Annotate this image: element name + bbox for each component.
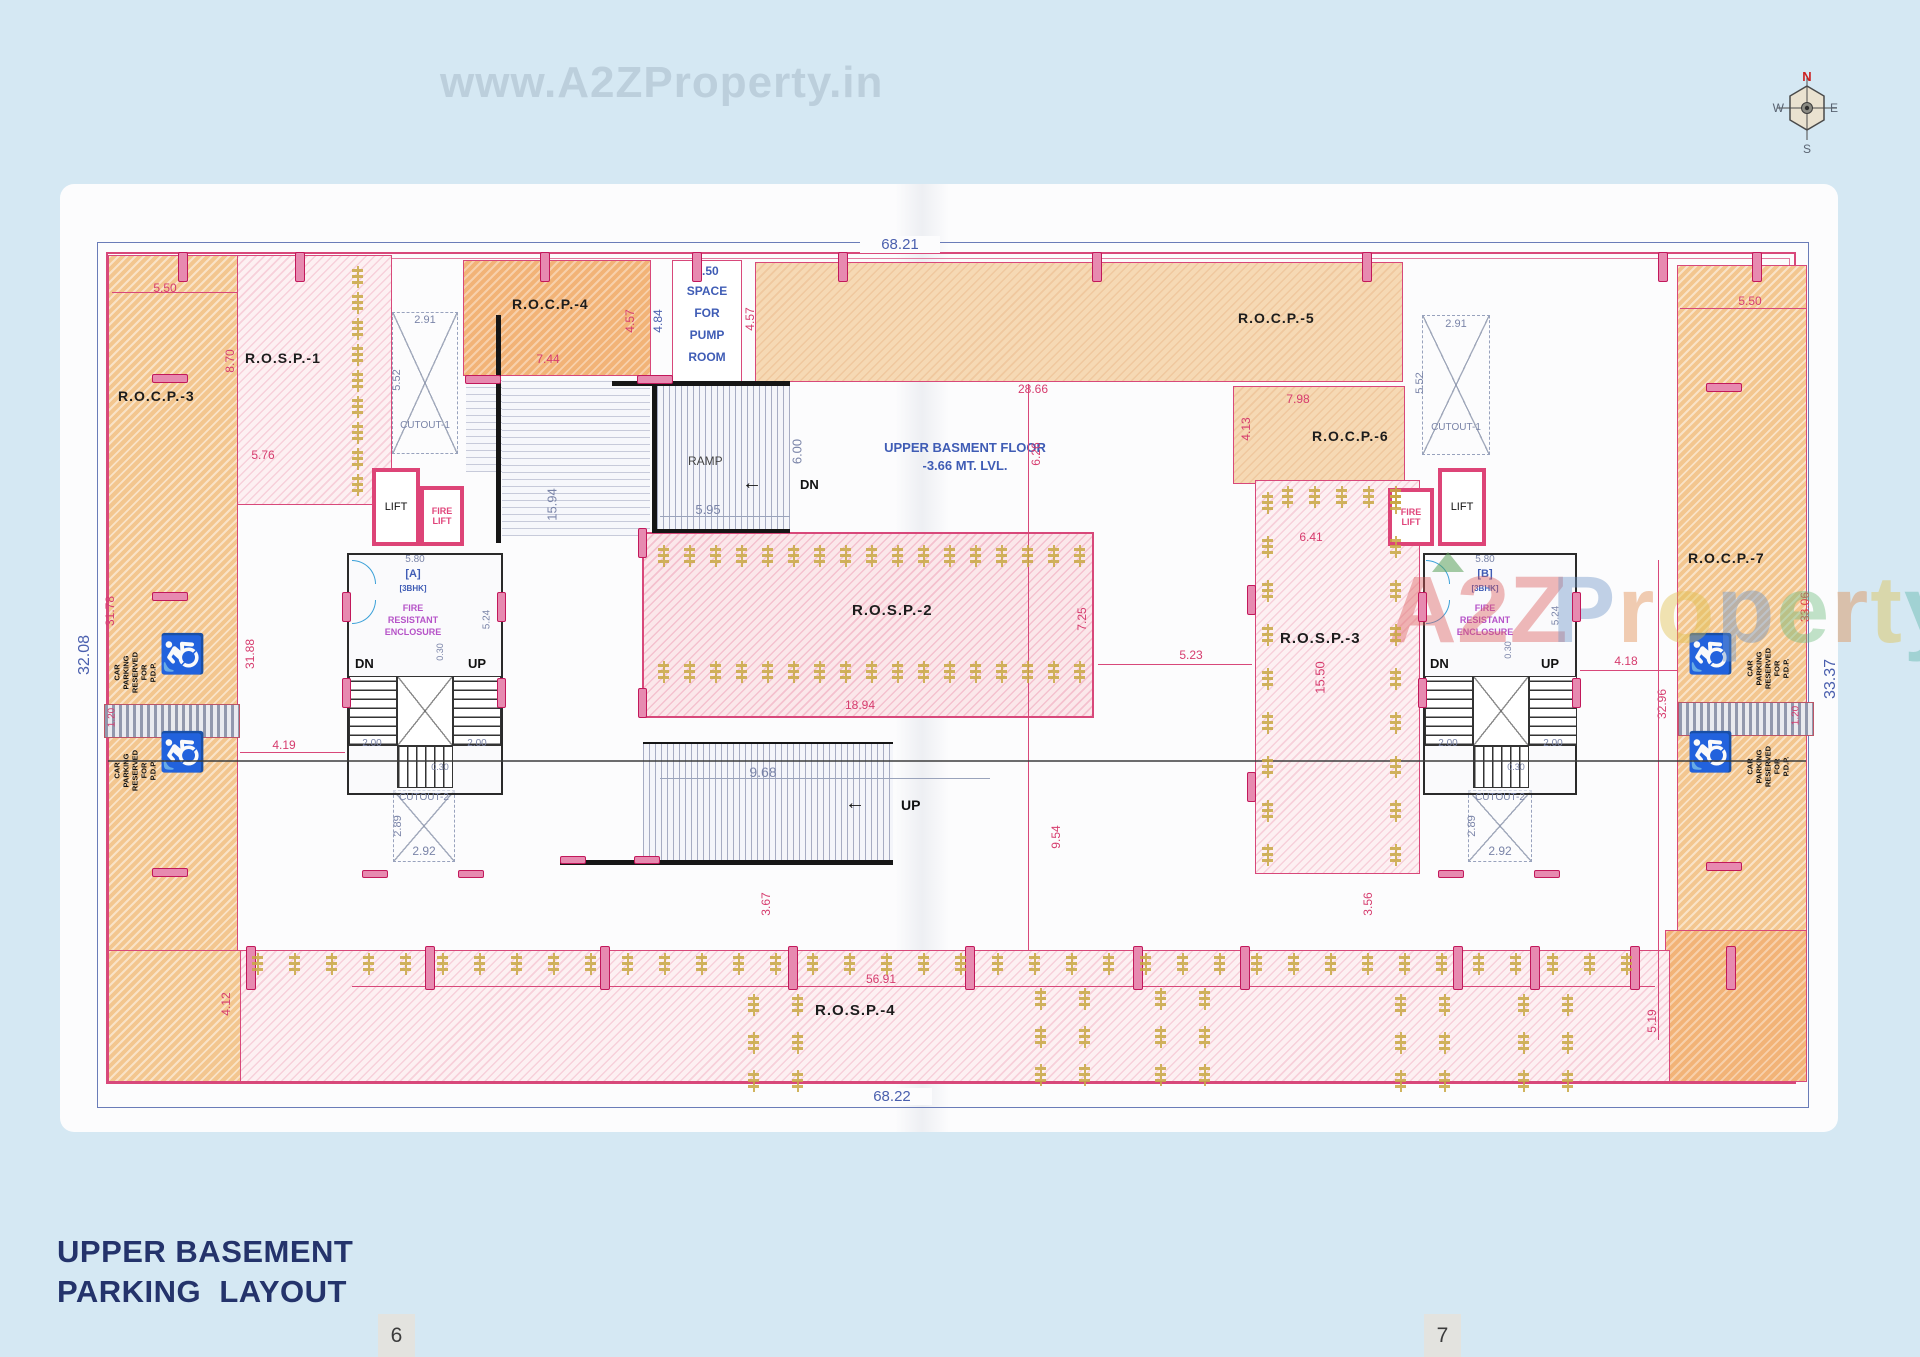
column-marker <box>1247 772 1256 802</box>
tree-icon <box>1079 1026 1090 1048</box>
column-marker <box>637 375 673 384</box>
tree-icon <box>622 953 633 975</box>
dim-576: 5.76 <box>233 448 293 462</box>
stairs-b-left-flight <box>1425 676 1473 746</box>
wall-segment <box>657 529 790 533</box>
cutout1-right-dim: 2.91 <box>1426 318 1486 330</box>
tree-icon <box>788 661 799 683</box>
tree-icon <box>289 953 300 975</box>
ramp-up-label: UP <box>901 797 920 813</box>
column-marker <box>1572 592 1581 622</box>
column-marker <box>152 374 188 383</box>
tree-icon <box>1262 756 1273 778</box>
column-marker <box>497 592 506 622</box>
column-marker <box>1418 592 1427 622</box>
tree-icon <box>918 661 929 683</box>
label-rosp1: R.O.S.P.-1 <box>245 350 321 366</box>
pump-room-l5: ROOM <box>672 350 742 364</box>
tree-icon <box>1262 492 1273 514</box>
tree-icon <box>1390 668 1401 690</box>
cutout1-left-dim: 2.91 <box>396 314 454 326</box>
car-parking-left-1: CARPARKING RESERVEDFOR P.D.P. <box>113 625 158 721</box>
tree-icon <box>710 545 721 567</box>
tree-icon <box>992 953 1003 975</box>
stairs-a-right-flight <box>453 676 501 746</box>
tree-icon <box>1390 486 1401 508</box>
tree-icon <box>585 953 596 975</box>
tree-icon <box>748 1070 759 1092</box>
tree-icon <box>658 545 669 567</box>
dimension-line <box>240 752 345 753</box>
dim-367: 3.67 <box>759 859 773 949</box>
tree-icon <box>1518 1032 1529 1054</box>
dim-744: 7.44 <box>518 352 578 366</box>
tree-icon <box>792 994 803 1016</box>
tree-icon <box>1035 1064 1046 1086</box>
lift-a-label: LIFT <box>385 501 408 513</box>
ramp-dn-arrow: ← <box>742 472 762 495</box>
dim-1550: 15.50 <box>1313 633 1328 723</box>
dim-595: 5.95 <box>678 502 738 517</box>
dimension-line <box>108 760 1806 762</box>
tree-icon <box>955 953 966 975</box>
dim-left: 32.08 <box>76 610 94 700</box>
tree-icon <box>918 953 929 975</box>
dim-030-b2: 0.30 <box>1496 762 1536 772</box>
tree-icon <box>1199 988 1210 1010</box>
dim-412: 4.12 <box>219 959 233 1049</box>
unit-a-bhk: [3BHK] <box>378 584 448 593</box>
dimension-line <box>660 516 790 517</box>
page-number-right: 7 <box>1424 1314 1461 1357</box>
tree-icon <box>840 545 851 567</box>
tree-icon <box>1621 953 1632 975</box>
tree-icon <box>352 396 363 418</box>
tree-icon <box>352 266 363 288</box>
dim-457-b: 4.57 <box>743 274 757 364</box>
tree-icon <box>658 661 669 683</box>
tree-icon <box>352 474 363 496</box>
tree-icon <box>1288 953 1299 975</box>
column-marker <box>788 946 798 990</box>
tree-icon <box>814 545 825 567</box>
label-rocp5: R.O.C.P.-5 <box>1238 310 1315 326</box>
tree-icon <box>736 545 747 567</box>
tree-icon <box>1251 953 1262 975</box>
column-marker <box>497 678 506 708</box>
tree-icon <box>1518 1070 1529 1092</box>
column-marker <box>1092 252 1102 282</box>
tree-icon <box>1079 1064 1090 1086</box>
dim-457-a: 4.57 <box>623 276 637 366</box>
wheelchair-icon-right-2: ♿ <box>1690 728 1734 775</box>
tree-icon <box>352 448 363 470</box>
dim-030-a2: 0.30 <box>420 762 460 772</box>
tree-icon <box>1262 800 1273 822</box>
tree-icon <box>1048 545 1059 567</box>
column-marker <box>1418 678 1427 708</box>
floor-note-line2: -3.66 MT. LVL. <box>880 458 1050 473</box>
dim-413: 4.13 <box>1239 384 1253 474</box>
fire-lift-a: FIRE LIFT <box>420 486 464 546</box>
floor-note-line1: UPPER BASMENT FLOOR <box>880 440 1050 455</box>
tree-icon <box>474 953 485 975</box>
column-marker <box>342 678 351 708</box>
unit-a-label: [A] <box>378 568 448 580</box>
tree-icon <box>1395 1032 1406 1054</box>
tree-icon <box>1390 624 1401 646</box>
pump-room-l4: PUMP <box>672 328 742 342</box>
stairs-a-landing <box>397 676 453 746</box>
tree-icon <box>1439 1032 1450 1054</box>
ramp-shaft-hatch <box>502 380 650 536</box>
tree-icon <box>352 318 363 340</box>
tree-icon <box>733 953 744 975</box>
dimension-line <box>1680 308 1806 309</box>
tree-icon <box>736 661 747 683</box>
tree-icon <box>326 953 337 975</box>
column-marker <box>965 946 975 990</box>
fire-lift-b-label1: FIRE <box>1401 507 1422 517</box>
tree-icon <box>1155 988 1166 1010</box>
compass-east-label: E <box>1830 101 1838 115</box>
dim-484: 4.84 <box>651 276 665 366</box>
tree-icon <box>792 1032 803 1054</box>
column-marker <box>634 856 660 864</box>
tree-icon <box>1103 953 1114 975</box>
wall-segment <box>560 860 893 865</box>
fire-resistant-a-3: ENCLOSURE <box>363 626 463 638</box>
tree-icon <box>892 545 903 567</box>
lift-b: LIFT <box>1438 468 1486 546</box>
cutout1-left-vdim: 5.52 <box>391 335 403 425</box>
tree-icon <box>1035 1026 1046 1048</box>
cutout1-right-label: CUTOUT-1 <box>1416 422 1496 433</box>
tree-icon <box>1199 1064 1210 1086</box>
dim-519: 5.19 <box>1645 976 1659 1066</box>
tree-icon <box>762 661 773 683</box>
tree-icon <box>944 661 955 683</box>
column-marker <box>1240 946 1250 990</box>
tree-icon <box>1079 988 1090 1010</box>
tree-icon <box>710 661 721 683</box>
dim-200-b1: 2.00 <box>1426 738 1470 749</box>
column-marker <box>600 946 610 990</box>
tree-icon <box>684 661 695 683</box>
tree-icon <box>770 953 781 975</box>
wheelchair-icon-left-1: ♿ <box>162 630 206 677</box>
column-marker <box>1706 383 1742 392</box>
tree-icon <box>881 953 892 975</box>
top-watermark: www.A2ZProperty.in <box>440 58 883 108</box>
tree-icon <box>944 545 955 567</box>
tree-icon <box>1439 1070 1450 1092</box>
fire-lift-b-label2: LIFT <box>1402 517 1421 527</box>
car-parking-left-2: CARPARKING RESERVEDFOR P.D.P. <box>113 723 158 819</box>
tree-icon <box>996 545 1007 567</box>
column-marker <box>152 592 188 601</box>
dim-bottom: 68.22 <box>852 1088 932 1105</box>
compass-north-label: N <box>1802 69 1811 84</box>
column-marker <box>362 870 388 878</box>
tree-icon <box>352 422 363 444</box>
tree-icon <box>1155 1064 1166 1086</box>
column-marker <box>465 375 501 384</box>
zone-corner-block <box>1665 930 1807 1082</box>
lift-a: LIFT <box>372 468 420 546</box>
column-marker <box>1752 252 1762 282</box>
dim-2866: 28.66 <box>1000 382 1066 396</box>
fire-lift-a-label2: LIFT <box>433 516 452 526</box>
pump-room-dim: 3.50 <box>672 264 742 278</box>
lift-b-label: LIFT <box>1451 501 1474 513</box>
dim-798: 7.98 <box>1268 392 1328 406</box>
tree-icon <box>1029 953 1040 975</box>
tree-icon <box>352 292 363 314</box>
tree-icon <box>1584 953 1595 975</box>
tree-icon <box>866 661 877 683</box>
tree-icon <box>1336 486 1347 508</box>
tree-icon <box>970 661 981 683</box>
tree-icon <box>788 545 799 567</box>
column-marker <box>1247 585 1256 615</box>
tree-icon <box>866 545 877 567</box>
tree-icon <box>1473 953 1484 975</box>
tree-icon <box>1510 953 1521 975</box>
tree-icon <box>1177 953 1188 975</box>
tree-icon <box>352 344 363 366</box>
dim-292-b: 2.92 <box>1472 844 1528 858</box>
column-marker <box>1534 870 1560 878</box>
tree-icon <box>1395 994 1406 1016</box>
column-marker <box>1438 870 1464 878</box>
stairs-b-right-flight <box>1529 676 1577 746</box>
stairs-a-up: UP <box>468 656 486 671</box>
tree-icon <box>437 953 448 975</box>
tree-icon <box>892 661 903 683</box>
column-marker <box>1453 946 1463 990</box>
dim-626: 6.26 <box>1029 409 1043 499</box>
tree-icon <box>1048 661 1059 683</box>
tree-icon <box>918 545 929 567</box>
column-marker <box>638 688 647 718</box>
tree-icon <box>1518 994 1529 1016</box>
tree-icon <box>1390 580 1401 602</box>
stairs-a-left-flight <box>349 676 397 746</box>
tree-icon <box>1390 536 1401 558</box>
tree-icon <box>1155 1026 1166 1048</box>
dimension-line <box>1098 664 1252 665</box>
dim-523: 5.23 <box>1163 648 1219 662</box>
tree-icon <box>1074 545 1085 567</box>
tree-icon <box>792 1070 803 1092</box>
column-marker <box>838 252 848 282</box>
label-rosp2: R.O.S.P.-2 <box>852 602 933 619</box>
column-marker <box>342 592 351 622</box>
tree-icon <box>659 953 670 975</box>
dimension-line <box>660 778 990 779</box>
wheelchair-icon-left-2: ♿ <box>162 728 206 775</box>
compass-rose: N S W E <box>1772 68 1842 156</box>
tree-icon <box>1262 580 1273 602</box>
column-marker <box>178 252 188 282</box>
tree-icon <box>840 661 851 683</box>
center-watermark-a2z: A2Z <box>1388 556 1567 665</box>
cutout1-left-label: CUTOUT-1 <box>386 420 464 431</box>
ramp-up-arrow: ← <box>845 792 865 815</box>
column-marker <box>638 528 647 558</box>
tree-icon <box>1199 1026 1210 1048</box>
title-line1: UPPER BASEMENT <box>57 1234 353 1269</box>
column-marker <box>1658 252 1668 282</box>
tree-icon <box>1022 661 1033 683</box>
fire-resistant-a-1: FIRE <box>363 602 463 614</box>
tree-icon <box>1390 800 1401 822</box>
dim-1894: 18.94 <box>828 698 892 712</box>
tree-icon <box>1262 712 1273 734</box>
label-rocp6: R.O.C.P.-6 <box>1312 428 1389 444</box>
dim-356: 3.56 <box>1361 859 1375 949</box>
column-marker <box>1362 252 1372 282</box>
tree-icon <box>1262 844 1273 866</box>
dim-3188: 31.88 <box>243 609 257 699</box>
pump-room-l2: SPACE <box>672 284 742 298</box>
tree-icon <box>1035 988 1046 1010</box>
cutout1-right-box <box>1422 315 1490 455</box>
column-marker <box>1706 862 1742 871</box>
cutout1-right-vdim: 5.52 <box>1414 338 1426 428</box>
tree-icon <box>1562 994 1573 1016</box>
label-rocp3: R.O.C.P.-3 <box>118 388 195 404</box>
dim-120-right: 1.20 <box>1791 671 1802 761</box>
column-marker <box>1572 678 1581 708</box>
compass-south-label: S <box>1803 142 1811 156</box>
column-marker <box>425 946 435 990</box>
fire-resistant-a-2: RESISTANT <box>363 614 463 626</box>
fire-lift-a-label1: FIRE <box>432 506 453 516</box>
dimension-line <box>112 292 237 293</box>
tree-icon <box>1363 486 1374 508</box>
tree-icon <box>1214 953 1225 975</box>
dim-200-a2: 2.00 <box>455 738 499 749</box>
tree-icon <box>1399 953 1410 975</box>
column-marker <box>152 868 188 877</box>
title-line2: PARKING LAYOUT <box>57 1274 347 1309</box>
column-marker <box>458 870 484 878</box>
center-watermark-property: Property <box>1552 556 1920 665</box>
tree-icon <box>1325 953 1336 975</box>
stairs-a-dn: DN <box>355 656 374 671</box>
tree-icon <box>996 661 1007 683</box>
page-number-left: 6 <box>378 1314 415 1357</box>
column-marker <box>692 252 702 282</box>
tree-icon <box>696 953 707 975</box>
compass-west-label: W <box>1773 101 1785 115</box>
dim-419: 4.19 <box>256 738 312 752</box>
tree-icon <box>970 545 981 567</box>
tree-icon <box>762 545 773 567</box>
label-rosp4: R.O.S.P.-4 <box>815 1002 896 1019</box>
tree-icon <box>807 953 818 975</box>
tree-icon <box>684 545 695 567</box>
wall-segment <box>652 385 657 533</box>
tree-icon <box>1362 953 1373 975</box>
tree-icon <box>1262 624 1273 646</box>
dim-292-a: 2.92 <box>396 844 452 858</box>
page-title: UPPER BASEMENTPARKING LAYOUT <box>57 1232 353 1312</box>
tree-icon <box>1562 1032 1573 1054</box>
watermark-house-icon <box>1432 552 1464 572</box>
dim-870: 8.70 <box>223 316 237 406</box>
dim-725: 7.25 <box>1075 574 1089 664</box>
dim-550-right: 5.50 <box>1720 294 1780 308</box>
label-rocp4: R.O.C.P.-4 <box>512 296 589 312</box>
dim-954: 9.54 <box>1049 792 1063 882</box>
dimension-line <box>1658 560 1659 1040</box>
tree-icon <box>363 953 374 975</box>
column-marker <box>1726 946 1736 990</box>
dim-524-a: 5.24 <box>482 575 493 665</box>
dim-641: 6.41 <box>1283 530 1339 544</box>
pump-room-l3: FOR <box>672 306 742 320</box>
tree-icon <box>252 953 263 975</box>
tree-icon <box>1436 953 1447 975</box>
zone-rosp1 <box>238 255 392 505</box>
tree-icon <box>1282 486 1293 508</box>
dim-600: 6.00 <box>790 407 805 497</box>
tree-icon <box>1390 844 1401 866</box>
tree-icon <box>814 661 825 683</box>
tree-icon <box>1140 953 1151 975</box>
tree-icon <box>548 953 559 975</box>
column-marker <box>1530 946 1540 990</box>
tree-icon <box>352 370 363 392</box>
dim-200-a1: 2.00 <box>350 738 394 749</box>
dim-top: 68.21 <box>860 236 940 253</box>
tree-icon <box>1390 756 1401 778</box>
tree-icon <box>1309 486 1320 508</box>
wall-segment <box>643 742 893 744</box>
ramp-label: RAMP <box>688 454 723 468</box>
column-marker <box>295 252 305 282</box>
dim-580-a: 5.80 <box>390 554 440 565</box>
tree-icon <box>400 953 411 975</box>
tree-icon <box>1562 1070 1573 1092</box>
tree-icon <box>1395 1070 1406 1092</box>
tree-icon <box>748 994 759 1016</box>
tree-icon <box>844 953 855 975</box>
tree-icon <box>1022 545 1033 567</box>
column-marker <box>560 856 586 864</box>
tree-icon <box>748 1032 759 1054</box>
page-background: www.A2ZProperty.in N S W E LIFT <box>0 0 1920 1357</box>
tree-icon <box>1390 712 1401 734</box>
dimension-line <box>1580 670 1678 671</box>
dim-1594: 15.94 <box>545 460 560 550</box>
tree-icon <box>1439 994 1450 1016</box>
column-marker <box>540 252 550 282</box>
tree-icon <box>1066 953 1077 975</box>
tree-icon <box>1262 536 1273 558</box>
stairs-b-landing <box>1473 676 1529 746</box>
tree-icon <box>511 953 522 975</box>
car-parking-right-2: CARPARKING RESERVEDFOR P.D.P. <box>1746 719 1791 815</box>
dim-200-b2: 2.00 <box>1531 738 1575 749</box>
wall-segment <box>496 315 501 543</box>
tree-icon <box>1074 661 1085 683</box>
tree-icon <box>1262 668 1273 690</box>
tree-icon <box>1547 953 1558 975</box>
